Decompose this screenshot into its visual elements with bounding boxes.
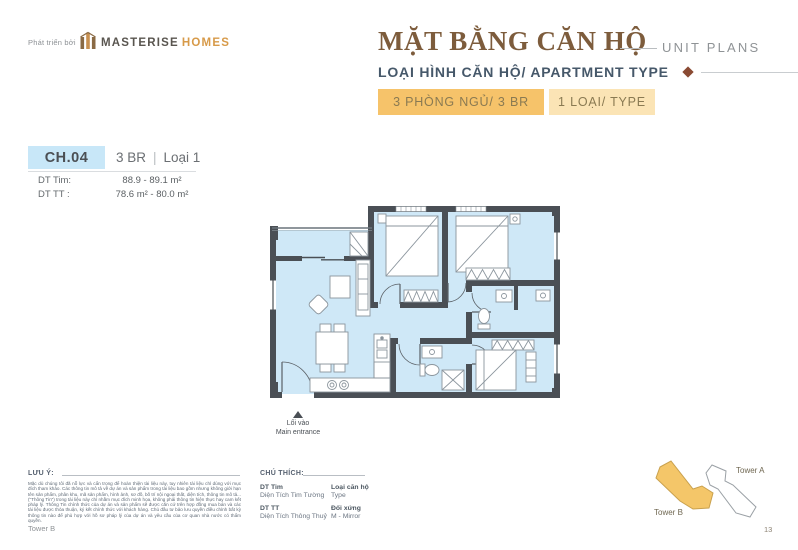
area-tt-label: DT TT : [38, 189, 70, 200]
notes-body: Mặc dù chúng tôi đã nỗ lực và cẩn trọng … [28, 481, 241, 523]
entrance-label-en: Main entrance [262, 429, 334, 436]
developer-prefix: Phát triển bởi [28, 38, 76, 47]
entrance-label-vi: Lối vào [270, 420, 326, 427]
unit-type-row: 3 BR|Loại 1 [116, 150, 200, 165]
unit-type-divider: | [146, 150, 164, 165]
notes-heading: LƯU Ý: [28, 470, 54, 477]
page-title-en: UNIT PLANS [662, 40, 760, 55]
brand-secondary: HOMES [182, 37, 230, 49]
sofa [356, 260, 370, 316]
title-divider-line [620, 48, 657, 49]
masterise-logo-icon [79, 30, 97, 50]
site-key-plan [636, 441, 794, 535]
entrance-arrow-icon [293, 411, 303, 418]
tower-a-label: Tower A [736, 466, 764, 475]
unit-variant: Loại 1 [164, 150, 201, 165]
area-tt-value: 78.6 m² - 80.0 m² [92, 189, 212, 200]
legend-term-dt-tim: DT Tim [260, 484, 283, 492]
legend-def-doi-xung: M - Mirror [331, 513, 360, 521]
legend-def-dt-tt: Diện Tích Thông Thuỷ [260, 513, 327, 521]
apartment-type-subtitle: LOẠI HÌNH CĂN HỘ/ APARTMENT TYPE [378, 64, 669, 80]
unit-bedrooms: 3 BR [116, 150, 146, 165]
page-number: 13 [764, 525, 772, 534]
legend-term-doi-xung: Đối xứng [331, 505, 361, 513]
legend-def-dt-tim: Diện Tích Tim Tường [260, 492, 324, 500]
legend-heading-line [303, 475, 365, 476]
legend-term-dt-tt: DT TT [260, 505, 279, 513]
area-tim-label: DT Tim: [38, 175, 71, 186]
page-title: MẶT BẰNG CĂN HỘ [378, 26, 647, 57]
unit-code-chip: CH.04 [28, 146, 105, 169]
coffee-table [330, 276, 350, 298]
legend-heading: CHÚ THÍCH: [260, 470, 304, 477]
badge-bedrooms: 3 PHÒNG NGỦ/ 3 BR [378, 89, 544, 115]
unit-plan-page: Phát triển bởi MASTERISEHOMES MẶT BẰNG C… [0, 0, 798, 550]
brand-logotype: MASTERISEHOMES [101, 37, 230, 49]
unit-row-underline [28, 171, 196, 172]
brand-primary: MASTERISE [101, 37, 179, 49]
tower-b-label: Tower B [654, 508, 683, 517]
subtitle-rule-line [701, 72, 798, 73]
area-tim-value: 88.9 - 89.1 m² [92, 175, 212, 186]
diamond-bullet-icon [682, 66, 693, 77]
badge-type-count: 1 LOẠI/ TYPE [549, 89, 655, 115]
floor-plan [270, 206, 562, 402]
footer-tower-name: Tower B [28, 524, 55, 533]
legend-def-loai-can-ho: Type [331, 492, 346, 500]
legend-term-loai-can-ho: Loại căn hộ [331, 484, 369, 492]
notes-heading-line [62, 475, 240, 476]
ac-ledge [350, 232, 368, 256]
tower-b-shape [656, 461, 713, 509]
